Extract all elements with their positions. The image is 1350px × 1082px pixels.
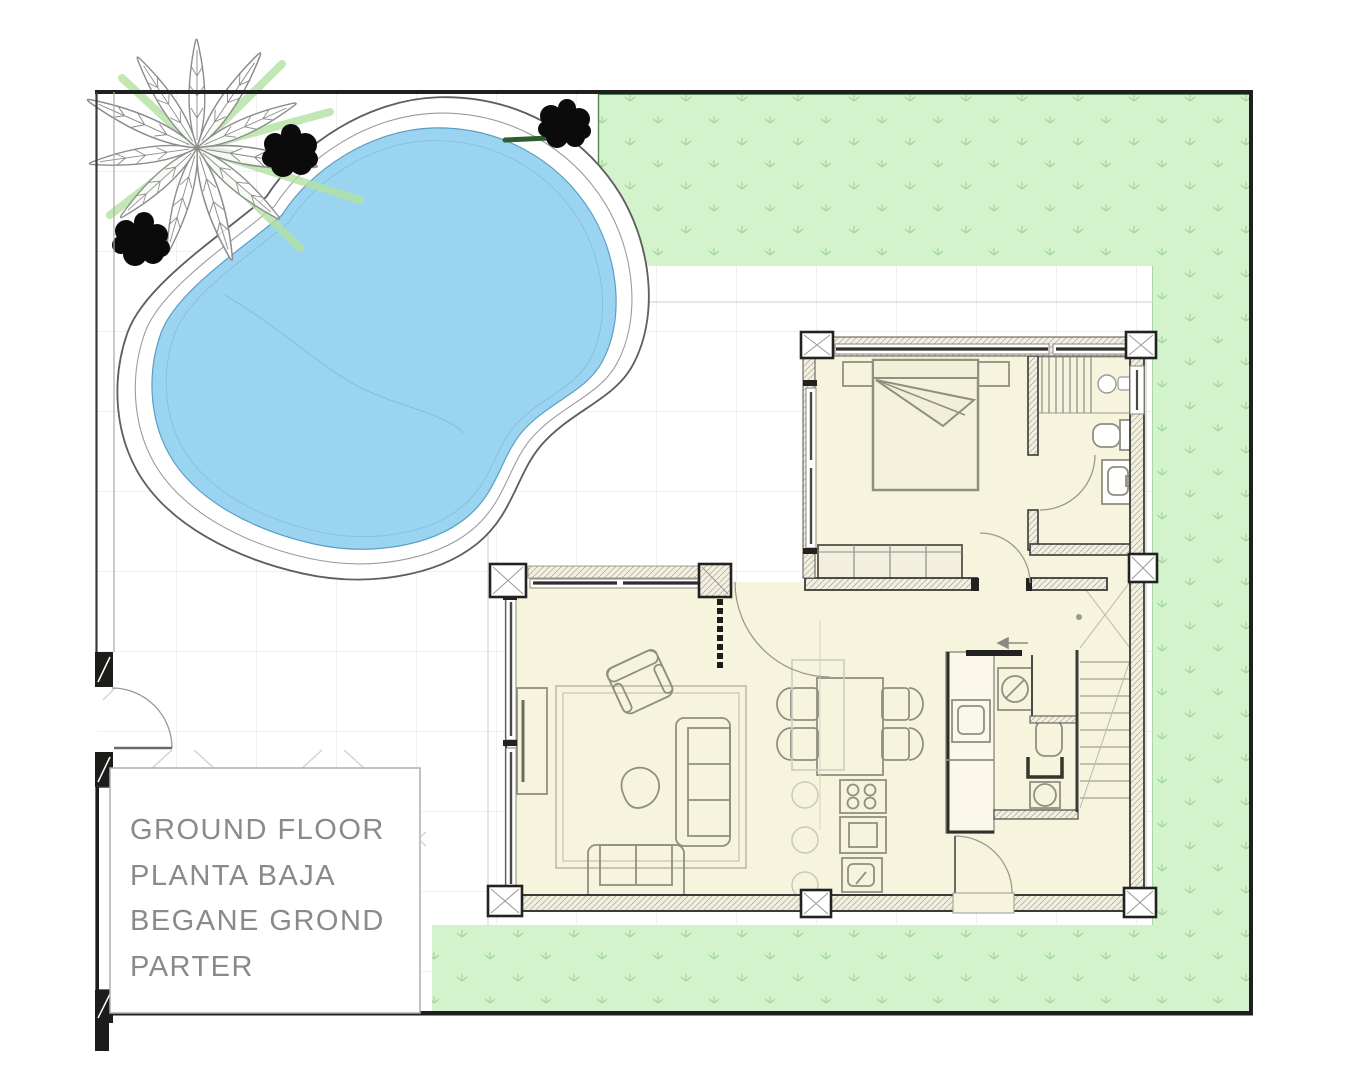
column [1129,554,1157,582]
stair-post [1076,614,1082,620]
lawn-right-band [1152,266,1253,1015]
column [488,886,522,916]
bathroom-wall [1028,356,1038,455]
title-block: GROUND FLOOR PLANTA BAJA BEGANE GROND PA… [110,768,420,1013]
column [1124,888,1156,917]
column [699,564,731,597]
title-line-planta-baja: PLANTA BAJA [130,860,336,892]
utility-partition [1030,716,1078,723]
bathroom-wall [1030,544,1140,555]
lawn-bottom-band [432,925,1253,1015]
title-line-ground-floor: GROUND FLOOR [130,814,385,846]
title-line-parter: PARTER [130,951,254,983]
column [1126,332,1156,358]
boundary-right [1249,90,1253,1015]
column [801,890,831,917]
column [801,332,833,358]
wardrobe [818,545,962,582]
lawn-top-right [598,92,1253,266]
bed [873,360,978,490]
utility-partition [994,810,1078,819]
floor-plan-svg: GROUND FLOOR PLANTA BAJA BEGANE GROND PA… [0,0,1350,1082]
backdoor-opening [953,893,1014,913]
title-line-begane-grond: BEGANE GROND [130,905,385,937]
utility-lintel [966,650,1022,656]
toilet [1093,420,1135,450]
boundary-top [95,90,1253,94]
palm-dark-frond [505,138,549,140]
entry-screen-dashes [717,590,723,668]
floor-plan-page: GROUND FLOOR PLANTA BAJA BEGANE GROND PA… [0,0,1350,1082]
shower-drain [1098,375,1116,393]
kitchen-counter [946,652,994,833]
wall-end [95,1023,109,1051]
column [490,564,526,597]
